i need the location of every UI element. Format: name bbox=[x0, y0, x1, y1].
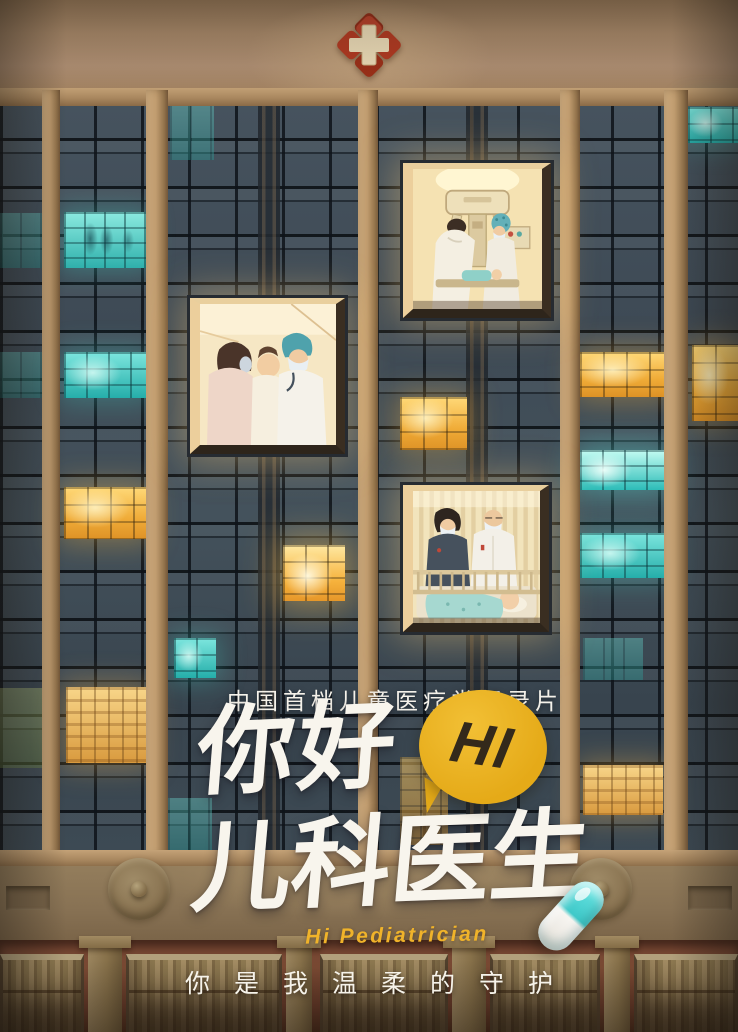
lit-window-cyan-dim bbox=[0, 213, 42, 268]
lit-window-cyan bbox=[174, 638, 216, 678]
tagline: 你是我温柔的守护 bbox=[12, 964, 738, 1000]
lit-window-cyan-dim bbox=[170, 104, 214, 160]
facade-pillar bbox=[42, 90, 60, 856]
lit-window-yellow bbox=[64, 487, 146, 539]
inset-plaque-right bbox=[688, 886, 732, 910]
title-line1: 你好 bbox=[194, 696, 403, 802]
lit-window-cyan-room bbox=[64, 212, 146, 268]
lit-window-yellow bbox=[580, 352, 666, 397]
poster: 中国首档儿童医疗类纪录片 你好 HI 儿科医生 Hi Pediatrician … bbox=[0, 0, 738, 1032]
capsule-pill-shape bbox=[531, 874, 611, 958]
lit-window-cyan bbox=[64, 352, 146, 398]
hospital-cross-svg bbox=[337, 13, 401, 77]
operating-room-scene bbox=[403, 163, 551, 318]
ward-crib-scene bbox=[403, 485, 549, 632]
facade-pillar bbox=[146, 90, 168, 856]
lit-window-yellow-bright bbox=[283, 545, 345, 601]
lit-window-yellow bbox=[692, 345, 738, 421]
capsule-pill-icon bbox=[531, 872, 611, 960]
operating-room-illustration bbox=[413, 169, 542, 309]
facade-pillar bbox=[664, 90, 688, 856]
lit-window-cyan-dim bbox=[0, 352, 42, 398]
lit-window-yellow bbox=[400, 397, 467, 450]
lit-window-cyan-dim bbox=[583, 638, 643, 680]
inset-plaque-left bbox=[6, 886, 50, 910]
hospital-cross-icon bbox=[337, 13, 401, 77]
clinic-exam-illustration bbox=[200, 304, 336, 445]
lit-window-cyan-bright bbox=[580, 450, 666, 490]
medallion-ornament-left bbox=[108, 858, 170, 920]
facade-pillar bbox=[560, 90, 580, 856]
ward-crib-illustration bbox=[413, 491, 540, 623]
lit-window-cyan bbox=[580, 533, 666, 578]
hi-speech-bubble: HI bbox=[413, 684, 552, 811]
clinic-exam-scene bbox=[190, 298, 345, 454]
lit-window-yellow-room bbox=[583, 765, 663, 815]
lit-window-cyan bbox=[688, 107, 738, 143]
